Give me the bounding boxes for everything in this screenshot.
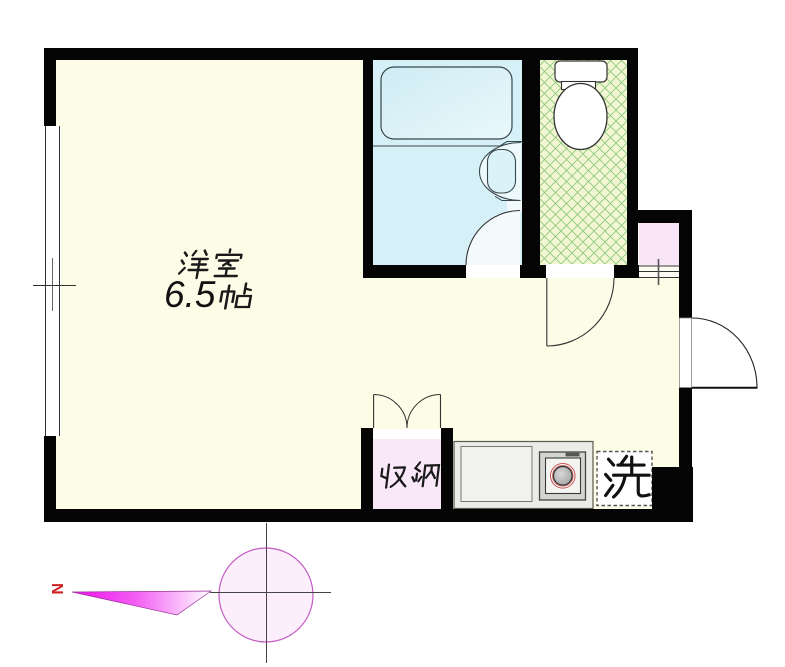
svg-text:N: N xyxy=(48,583,65,595)
svg-text:6.5: 6.5 xyxy=(164,274,216,315)
